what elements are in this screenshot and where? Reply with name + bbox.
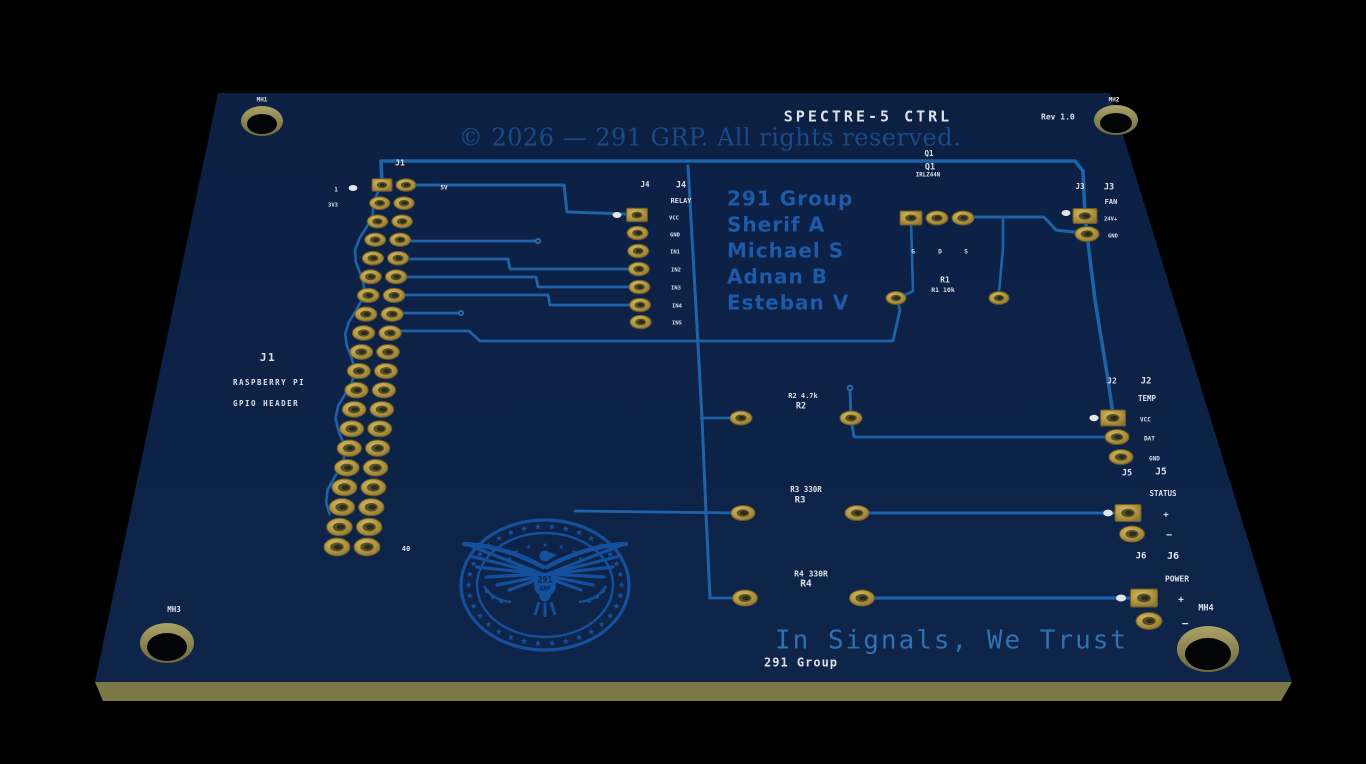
- solder-pad: [1075, 227, 1099, 242]
- solder-pad: [367, 215, 388, 228]
- solder-pad: [628, 244, 649, 258]
- j1-net-5v: 5V: [440, 185, 448, 192]
- solder-pad: [329, 499, 354, 516]
- r1-ref: R1: [940, 276, 950, 285]
- solder-pad: [337, 440, 361, 456]
- credits-name-2: Michael S: [727, 239, 844, 263]
- board-revision: Rev 1.0: [1041, 113, 1075, 122]
- solder-pad: [370, 197, 390, 210]
- j2-ref: J2: [1141, 377, 1152, 387]
- solder-pad: [357, 288, 379, 302]
- copyright-text: © 2026 — 291 GRP. All rights reserved.: [459, 124, 961, 152]
- solder-pad: [733, 590, 758, 606]
- solder-pad: [731, 506, 755, 521]
- credits-name-1: Sherif A: [727, 213, 825, 237]
- j4-pin-in1: IN1: [670, 250, 681, 256]
- solder-pad: [356, 518, 382, 536]
- j2-fab-ref: J2: [1107, 377, 1117, 386]
- j4-pin-in4: IN4: [672, 304, 683, 310]
- solder-pad: [840, 411, 862, 425]
- r4-value: R4 330R: [794, 570, 828, 579]
- solder-pad: [347, 363, 370, 378]
- j3-pin-gnd: GND: [1108, 234, 1119, 240]
- solder-pad-square: [1073, 209, 1097, 224]
- mh3-label: MH3: [167, 605, 181, 614]
- solder-pad: [345, 382, 368, 398]
- j4-pin-in3: IN3: [671, 286, 681, 292]
- credits-block: 291 Group Sherif A Michael S Adnan B Est…: [727, 187, 853, 315]
- solder-pad: [383, 288, 405, 302]
- solder-pad: [394, 197, 414, 210]
- solder-pad: [730, 411, 752, 425]
- solder-pad: [368, 421, 392, 437]
- j3-fab-ref: J3: [1075, 182, 1085, 191]
- r2-value: R2 4.7k: [788, 392, 818, 400]
- solder-pad: [327, 518, 353, 536]
- j6-pin-plus: +: [1178, 595, 1184, 606]
- mh2-label: MH2: [1109, 97, 1120, 104]
- solder-pad: [989, 292, 1009, 305]
- j4-name: RELAY: [670, 197, 692, 205]
- pcb-3d-view[interactable]: © 2026 — 291 GRP. All rights reserved. 2…: [0, 0, 1366, 764]
- solder-pad: [350, 344, 373, 359]
- solder-pad: [952, 211, 974, 225]
- j6-pin-minus: −: [1182, 617, 1189, 630]
- r2-ref: R2: [796, 402, 806, 412]
- q1-pin-g: G: [911, 249, 915, 256]
- j4-ref: J4: [676, 181, 686, 191]
- solder-pad: [388, 251, 409, 265]
- mounting-hole-mh2: [1094, 105, 1138, 135]
- solder-pad: [342, 401, 366, 417]
- solder-pad: [362, 251, 383, 265]
- solder-pad: [363, 459, 388, 476]
- solder-pad-square: [1131, 589, 1158, 607]
- credits-name-4: Esteban V: [727, 291, 849, 315]
- q1-fab-ref: Q1: [924, 149, 934, 158]
- solder-pad-square: [900, 211, 922, 225]
- solder-pad: [1105, 430, 1129, 445]
- j5-name: STATUS: [1149, 489, 1177, 498]
- j1-pin1-net: 3V3: [328, 203, 338, 209]
- j2-pin-dat: DAT: [1144, 436, 1155, 443]
- r3-ref: R3: [795, 496, 806, 506]
- brand-text: 291 Group: [764, 656, 838, 670]
- j2-name: TEMP: [1138, 394, 1157, 403]
- pcb-board[interactable]: [95, 93, 1292, 682]
- solder-pad: [390, 233, 411, 246]
- j1-pin40-label: 40: [402, 545, 410, 553]
- board-edge: [95, 682, 1292, 701]
- solder-pad: [340, 421, 364, 437]
- mounting-hole-mh3: [140, 623, 194, 663]
- solder-pad: [1109, 450, 1133, 465]
- solder-pad: [359, 499, 384, 516]
- solder-pad: [627, 226, 648, 240]
- logo-shield-grp: GRP: [540, 586, 551, 593]
- solder-pad: [365, 233, 386, 246]
- j4-pin-in5: IN5: [672, 321, 682, 327]
- solder-pad: [385, 270, 407, 284]
- q1-ref: Q1: [925, 163, 935, 173]
- solder-pad-square: [627, 208, 648, 222]
- j6-fab-ref: J6: [1136, 552, 1147, 562]
- solder-pad: [629, 280, 650, 294]
- solder-pad-square: [1101, 410, 1126, 426]
- j1-desc-1: RASPBERRY PI: [233, 378, 305, 387]
- solder-pad: [365, 440, 389, 456]
- j3-pin-24v: 24V+: [1104, 217, 1118, 223]
- solder-pad: [361, 479, 386, 496]
- eagle-head: [540, 551, 551, 562]
- j3-ref: J3: [1104, 183, 1114, 193]
- solder-pad: [886, 292, 906, 305]
- r1-value: R1 10k: [931, 286, 955, 294]
- board-title: SPECTRE-5 CTRL: [784, 108, 952, 126]
- solder-pad: [377, 344, 400, 359]
- solder-pad: [335, 459, 360, 476]
- motto-text: In Signals, We Trust: [775, 626, 1128, 656]
- j6-name: POWER: [1165, 575, 1189, 584]
- credits-group: 291 Group: [727, 187, 853, 211]
- solder-pad: [352, 326, 374, 341]
- solder-pad: [392, 215, 413, 228]
- j1-ref-top: J1: [395, 159, 405, 168]
- solder-pad: [354, 538, 380, 556]
- credits-name-3: Adnan B: [727, 265, 828, 289]
- j4-pin-vcc: VCC: [669, 216, 679, 222]
- solder-pad: [355, 307, 377, 321]
- solder-pad: [360, 270, 382, 284]
- j3-name: FAN: [1105, 198, 1118, 206]
- mh4-label: MH4: [1198, 604, 1213, 614]
- q1-value: IRLZ44N: [916, 173, 941, 179]
- logo-shield-291: 291: [537, 576, 552, 586]
- mh1-label: MH1: [257, 97, 268, 104]
- solder-pad-square: [1115, 505, 1141, 522]
- solder-pad: [630, 315, 651, 329]
- trace-r3-left: [575, 511, 741, 513]
- j5-pin-plus: +: [1163, 511, 1169, 521]
- solder-pad: [1136, 613, 1162, 630]
- solder-pad: [1120, 526, 1145, 542]
- j4-pin-in2: IN2: [671, 268, 681, 274]
- j5-ref: J5: [1155, 467, 1167, 478]
- j2-pin-vcc: VCC: [1140, 417, 1151, 424]
- r3-value: R3 330R: [790, 485, 822, 494]
- solder-pad: [630, 298, 651, 312]
- solder-pad-square: [372, 179, 392, 192]
- mounting-hole-mh4: [1177, 626, 1239, 672]
- solder-pad: [628, 262, 649, 276]
- mounting-hole-mh1: [241, 106, 283, 136]
- solder-pad: [372, 382, 395, 398]
- solder-pad: [850, 590, 875, 606]
- q1-pin-s: S: [964, 249, 968, 256]
- j4-pin-gnd: GND: [670, 233, 681, 239]
- solder-pad: [396, 179, 416, 192]
- j5-pin-minus: −: [1166, 530, 1172, 541]
- solder-pad: [332, 479, 357, 496]
- solder-pad: [370, 401, 394, 417]
- j5-fab-ref: J5: [1122, 469, 1132, 479]
- solder-pad: [845, 506, 869, 521]
- r4-ref: R4: [800, 579, 812, 590]
- j2-pin-gnd: GND: [1149, 456, 1160, 463]
- q1-pin-d: D: [938, 249, 942, 256]
- solder-pad: [379, 326, 401, 341]
- j4-fab-ref: J4: [640, 180, 650, 189]
- j6-ref: J6: [1167, 551, 1179, 562]
- j1-pin1-label: 1: [334, 187, 338, 194]
- j1-ref: J1: [260, 351, 276, 364]
- j1-desc-2: GPIO HEADER: [233, 399, 299, 408]
- solder-pad: [926, 211, 948, 225]
- solder-pad: [324, 538, 350, 556]
- solder-pad: [381, 307, 403, 321]
- solder-pad: [374, 363, 397, 378]
